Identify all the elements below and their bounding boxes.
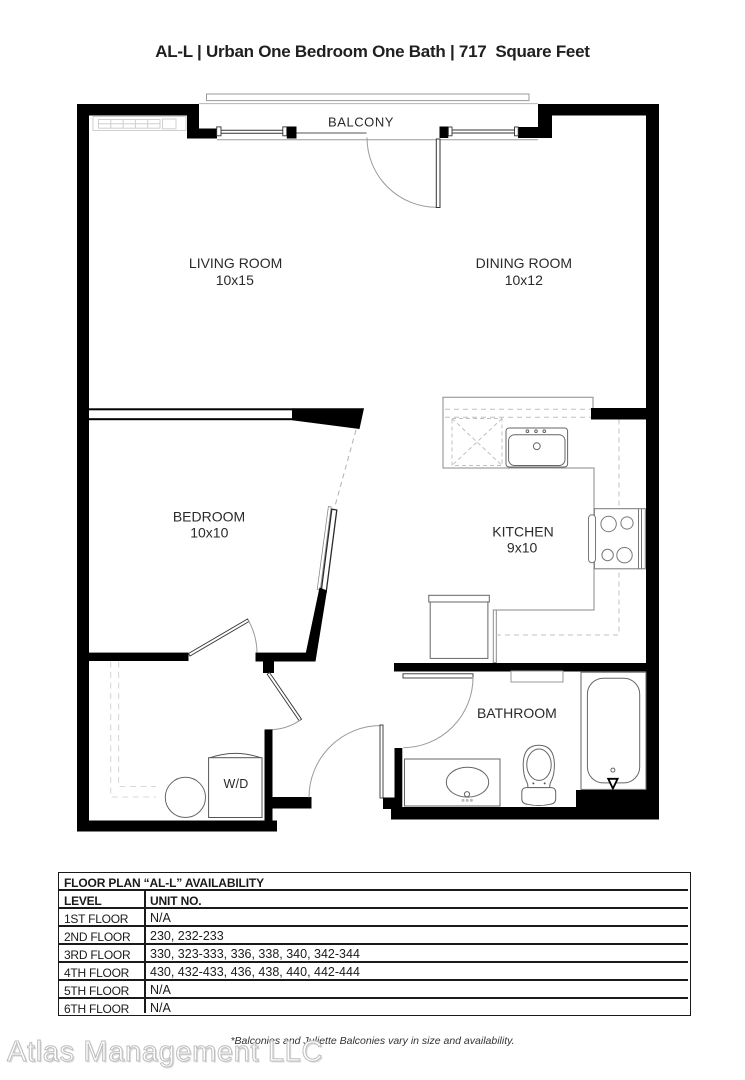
svg-text:BALCONY: BALCONY xyxy=(328,115,394,130)
svg-text:9x10: 9x10 xyxy=(507,540,538,556)
svg-text:10x10: 10x10 xyxy=(190,525,228,541)
svg-text:KITCHEN: KITCHEN xyxy=(492,524,553,540)
svg-text:BATHROOM: BATHROOM xyxy=(477,705,557,721)
svg-text:LIVING ROOM: LIVING ROOM xyxy=(189,255,282,271)
svg-text:10x12: 10x12 xyxy=(505,272,543,288)
svg-text:10x15: 10x15 xyxy=(216,272,254,288)
svg-text:W/D: W/D xyxy=(224,777,249,791)
svg-text:DINING ROOM: DINING ROOM xyxy=(476,255,572,271)
svg-text:BEDROOM: BEDROOM xyxy=(173,509,245,525)
